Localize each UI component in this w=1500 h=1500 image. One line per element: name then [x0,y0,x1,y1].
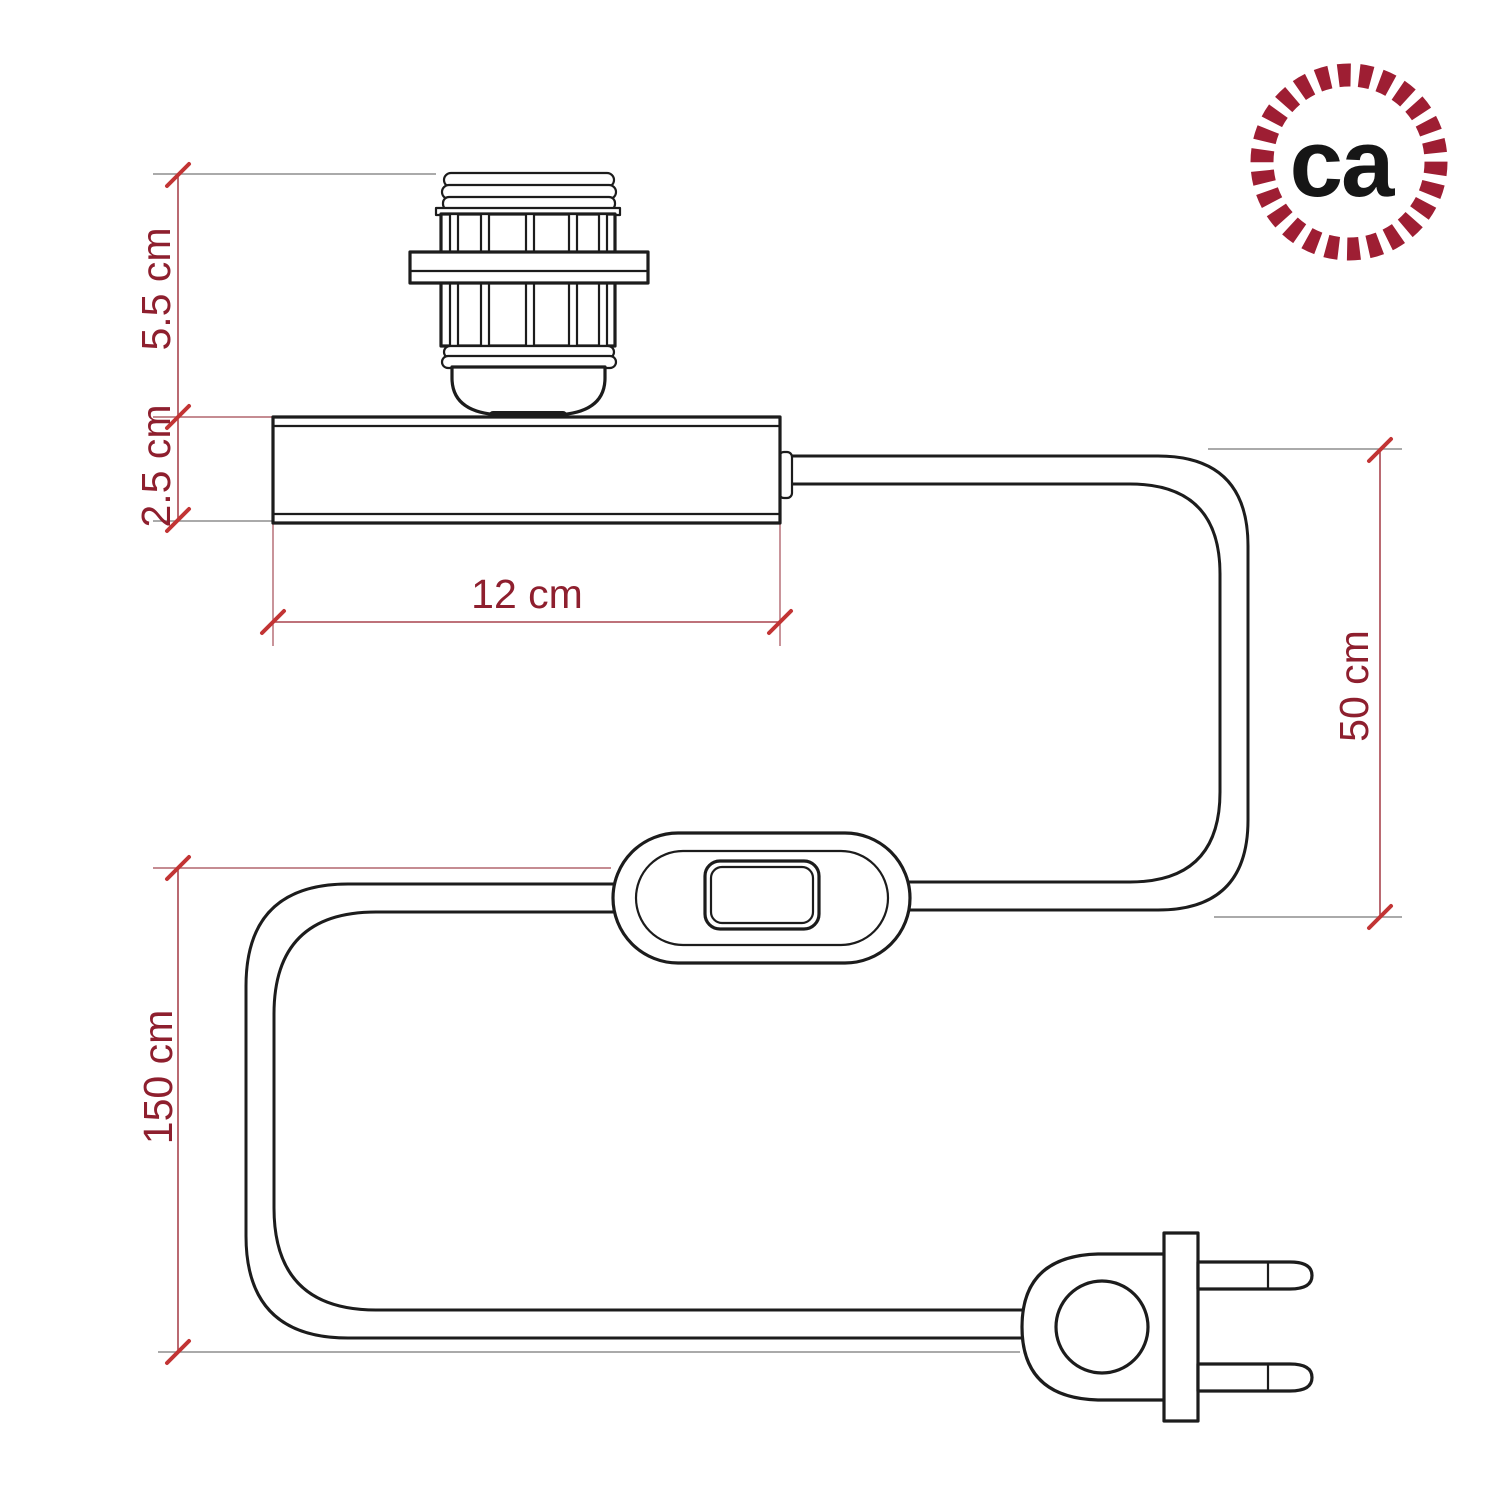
socket-height-label: 5.5 cm [133,227,179,350]
lamp-socket [410,173,648,420]
brand-logo: ca [1262,75,1436,249]
dimension-socket-height: 5.5 cm [133,164,436,417]
dimension-base-width: 12 cm [262,524,791,646]
shade-ring [410,252,648,283]
base-width-label: 12 cm [471,571,583,617]
dimension-upper-cable: 50 cm [1208,439,1402,928]
upper-cable-label: 50 cm [1331,630,1377,742]
power-plug [1022,1233,1312,1421]
switch-rocker-inner [711,867,813,923]
plug-face-plate [1164,1233,1198,1421]
total-cable-label: 150 cm [135,1010,181,1144]
product-dimension-diagram: 5.5 cm 2.5 cm 12 cm 50 cm 150 cm [0,0,1500,1500]
power-cable-lower [246,884,1026,1338]
lamp-base [273,417,792,523]
cable-edge [792,484,1220,882]
plug-pin-bottom [1198,1364,1312,1391]
socket-cup [452,367,605,415]
inline-switch [613,833,910,963]
cable-edge [274,912,1026,1310]
base-height-label: 2.5 cm [133,404,179,527]
cable-edge [246,884,1026,1338]
diagram-canvas: 5.5 cm 2.5 cm 12 cm 50 cm 150 cm [0,0,1500,1500]
dimension-base-height: 2.5 cm [133,404,272,531]
logo-text: ca [1290,110,1395,217]
plug-grip-circle [1056,1281,1148,1373]
base-body [273,417,780,523]
plug-pin-top [1198,1262,1312,1289]
